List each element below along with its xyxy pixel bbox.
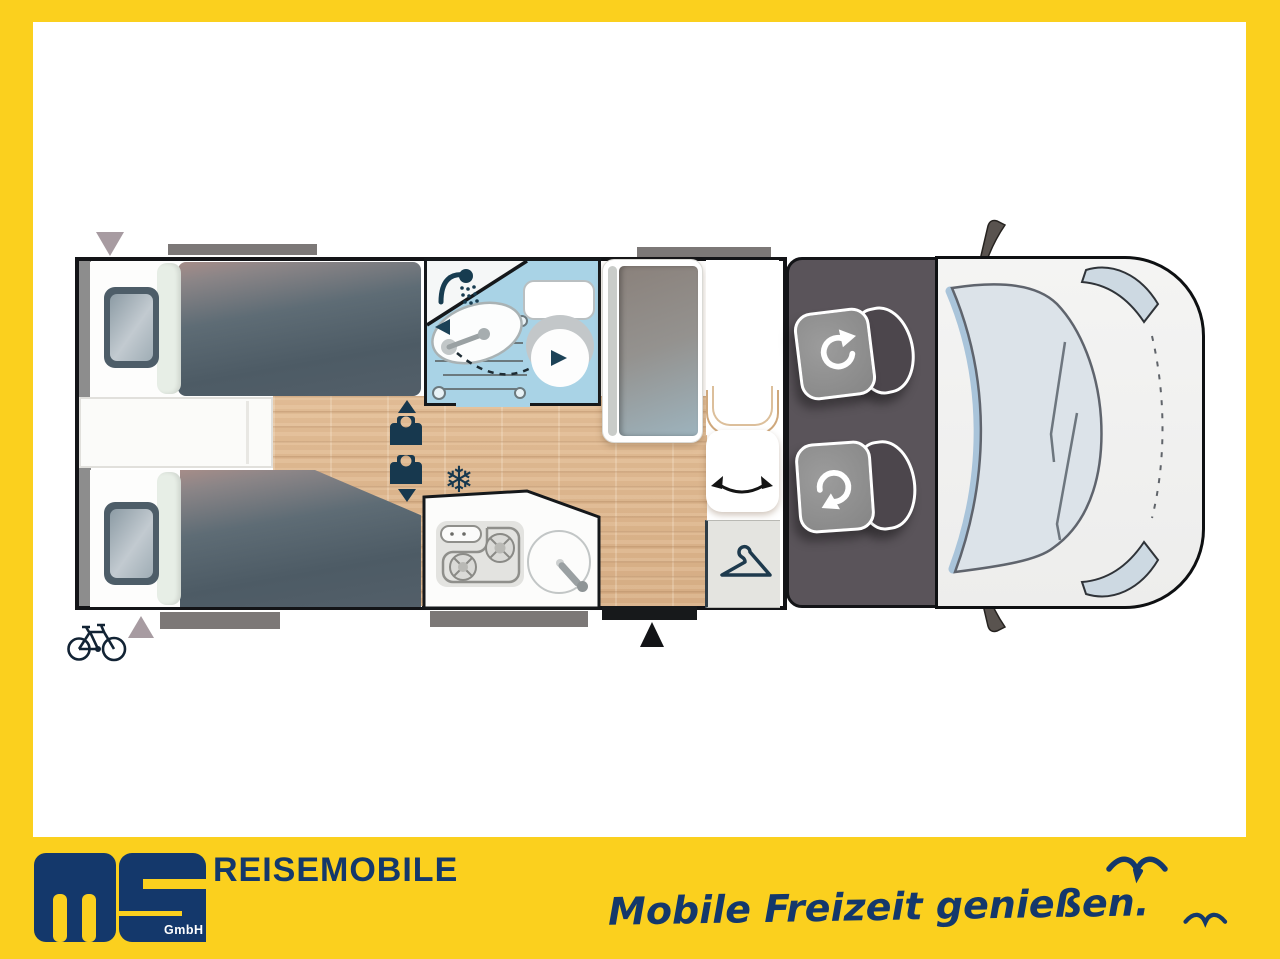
frame-left (0, 0, 33, 959)
seagull-icon-large (1106, 851, 1170, 885)
bench-edge-curve-inner (712, 386, 773, 426)
sink-faucet-knob (577, 581, 588, 592)
seat-rotation-arrow-icon (810, 327, 861, 378)
brand-slogan: Mobile Freizeit genießen. (608, 880, 1150, 933)
fridge-hinge-strip (608, 266, 617, 436)
door-swivel-zone (706, 430, 779, 512)
travel-seat-icon (389, 454, 423, 484)
garage-arrow-icon (128, 616, 154, 638)
wardrobe (705, 520, 780, 608)
door-swivel-arrows-icon (710, 472, 774, 500)
shower-icon (435, 266, 479, 310)
entry-arrow-icon (640, 622, 664, 647)
between-beds-shelf (79, 397, 273, 468)
fridge-cabinet (602, 259, 703, 443)
passenger-seat-cushion (794, 439, 876, 534)
seat-direction-up-arrow (398, 400, 416, 413)
bottom-bumper-right (430, 611, 588, 627)
brand-bar: GmbH REISEMOBILE Mobile Freizeit genieße… (0, 837, 1280, 959)
headlight-top (1078, 258, 1170, 336)
hood-panel-line (1148, 334, 1174, 524)
headlight-bottom (1078, 528, 1170, 606)
bathroom (424, 258, 601, 406)
fridge-door-panel (619, 266, 698, 436)
kitchen-sink (527, 530, 591, 594)
hanger-icon (719, 543, 773, 583)
pillow-top (104, 287, 159, 368)
stove (435, 520, 525, 588)
entry-door-step (602, 606, 697, 620)
cab-floor (786, 257, 938, 608)
frame-right (1246, 0, 1280, 959)
seat-rotation-arrow-icon (806, 456, 867, 517)
bottom-bumper-left (160, 612, 280, 629)
mattress-top (178, 262, 421, 396)
blanket-edge-top (157, 263, 181, 394)
frame-top (0, 0, 1280, 22)
seagull-icon-small (1183, 909, 1229, 933)
bathroom-doorway (456, 402, 530, 407)
pillow-bottom (104, 502, 159, 585)
bicycle-icon (64, 618, 130, 662)
seat-direction-down-arrow (398, 489, 416, 502)
snowflake-icon: ❄ (440, 462, 478, 500)
logo-gmbh-label: GmbH (164, 923, 204, 937)
blanket-edge-bottom (157, 472, 181, 605)
roof-bumper-left (168, 244, 317, 255)
logo-m-block (34, 853, 116, 942)
travel-seat-icon (389, 415, 423, 445)
roof-bumper-right (637, 247, 771, 257)
rear-door-arrow-icon (96, 232, 124, 256)
company-name: REISEMOBILE (213, 851, 458, 890)
floorplan-canvas: ❄ (0, 22, 1280, 837)
driver-seat-cushion (792, 306, 878, 403)
shelf-divider-line (246, 401, 249, 464)
